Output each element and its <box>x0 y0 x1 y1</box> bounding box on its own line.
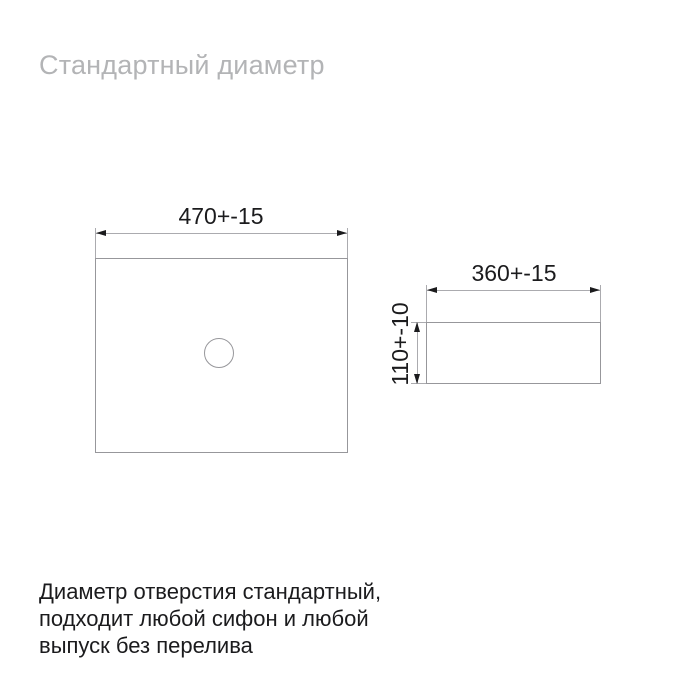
description-line-3: выпуск без перелива <box>39 632 381 659</box>
arrowhead-right-icon <box>337 230 347 236</box>
description-line-2: подходит любой сифон и любой <box>39 605 381 632</box>
width-dimension-label-470: 470+-15 <box>121 203 321 230</box>
arrowhead-right-icon <box>590 287 600 293</box>
description-line-1: Диаметр отверстия стандартный, <box>39 578 381 605</box>
height-dimension-label-110: 110+-10 <box>387 289 413 399</box>
basin-side-view-outline <box>426 322 601 384</box>
arrowhead-up-icon <box>414 322 420 332</box>
dimension-line-360 <box>427 290 600 291</box>
arrowhead-down-icon <box>414 374 420 384</box>
extension-line-right <box>347 228 348 258</box>
dimension-line-470 <box>96 233 347 234</box>
description-text: Диаметр отверстия стандартный, подходит … <box>39 578 381 659</box>
drain-hole-circle <box>204 338 234 368</box>
arrowhead-left-icon <box>96 230 106 236</box>
page-title: Стандартный диаметр <box>39 50 325 81</box>
arrowhead-left-icon <box>427 287 437 293</box>
product-dimension-card: Стандартный диаметр 470+-15 360+-15 110+… <box>0 0 700 700</box>
extension-line-right <box>600 285 601 322</box>
width-dimension-label-360: 360+-15 <box>414 260 614 287</box>
